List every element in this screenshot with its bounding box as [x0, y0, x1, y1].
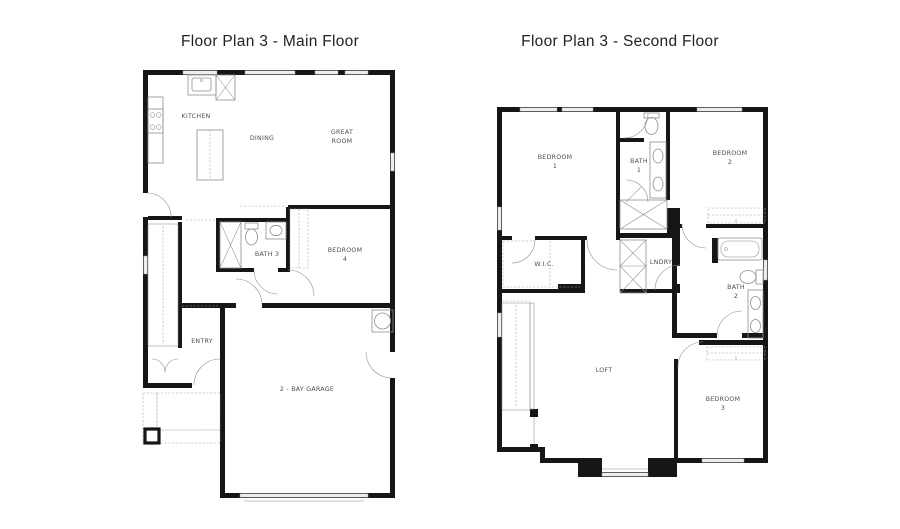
bedroom1-door-arc [587, 240, 617, 270]
bedroom2-label-2: 2 [728, 159, 732, 166]
water-heater [372, 310, 393, 332]
bath3-label: BATH 3 [255, 251, 279, 258]
laundry-label: LNDRY [650, 259, 672, 266]
second-floor-title: Floor Plan 3 - Second Floor [480, 33, 760, 51]
main-floor-title: Floor Plan 3 - Main Floor [136, 33, 404, 51]
bath1-label-2: 1 [637, 167, 641, 174]
bedroom2-label-1: BEDROOM [713, 150, 748, 157]
laundry-closet [620, 240, 646, 293]
garage-label: 2 - BAY GARAGE [280, 386, 334, 393]
porch-post [145, 429, 159, 443]
toilet-bath3 [245, 223, 258, 245]
garage-door [240, 494, 368, 498]
kitchen-island [197, 130, 223, 180]
bedroom2-closet [708, 208, 765, 223]
bedroom1-label-2: 1 [553, 163, 557, 170]
bedroom3-closet [707, 347, 765, 360]
loft-label: LOFT [596, 367, 613, 374]
shower-bath1 [620, 200, 667, 229]
dining-door-gap [143, 193, 148, 217]
bath2-label-2: 2 [734, 293, 738, 300]
garage-side-door-arc [366, 352, 392, 378]
pantry-cabinet [216, 75, 235, 100]
bedroom4-label-2: 4 [343, 256, 347, 263]
wic-door-arc [512, 240, 535, 263]
bedroom4-closet [290, 209, 308, 268]
understair-closet-doors [152, 359, 178, 372]
bath2-door-arc [717, 311, 742, 336]
toilet-bath2 [740, 270, 763, 284]
front-door-arc [194, 359, 220, 385]
range-stove [148, 109, 163, 133]
main-floor-plan: KITCHEN DINING GREAT ROOM BATH 3 BEDROOM… [136, 66, 404, 506]
vanity-bath2 [748, 290, 763, 338]
vanity-bath1 [650, 142, 666, 198]
bedroom3-label-2: 3 [721, 405, 725, 412]
staircase-second [502, 301, 534, 444]
staircase-main [148, 224, 178, 346]
dining-label: DINING [250, 135, 274, 142]
shower-bath3 [220, 222, 241, 268]
kitchen-counter [148, 97, 163, 163]
bath1-door [626, 180, 648, 202]
garage-hall-door-arc [236, 279, 262, 305]
garage-side-door-gap [390, 352, 395, 378]
toilet-room-door-arc [624, 114, 648, 138]
bedroom4-door-arc [288, 270, 314, 296]
kitchen-sink [188, 75, 216, 95]
wic-label: W.I.C. [534, 261, 553, 268]
dining-side-door-arc [147, 193, 171, 217]
entry-label: ENTRY [191, 338, 213, 345]
kitchen-label: KITCHEN [181, 113, 210, 120]
bedroom2-door-arc [682, 224, 706, 248]
vanity-bath3 [266, 222, 286, 239]
bedroom3-label-1: BEDROOM [706, 396, 741, 403]
floor-plan-sheet: Floor Plan 3 - Main Floor Floor Plan 3 -… [0, 0, 900, 529]
bedroom1-label-1: BEDROOM [538, 154, 573, 161]
bath1-label-1: BATH [630, 158, 648, 165]
great-room-label-1: GREAT [331, 129, 353, 136]
great-room-label-2: ROOM [332, 138, 353, 145]
tub-bath2 [718, 238, 762, 260]
bedroom3-door-arc [678, 342, 703, 367]
bath2-label-1: BATH [727, 284, 745, 291]
second-floor-plan: BEDROOM 1 BATH 1 BEDROOM 2 W.I.C. LNDRY … [490, 100, 780, 490]
bedroom4-label-1: BEDROOM [328, 247, 363, 254]
